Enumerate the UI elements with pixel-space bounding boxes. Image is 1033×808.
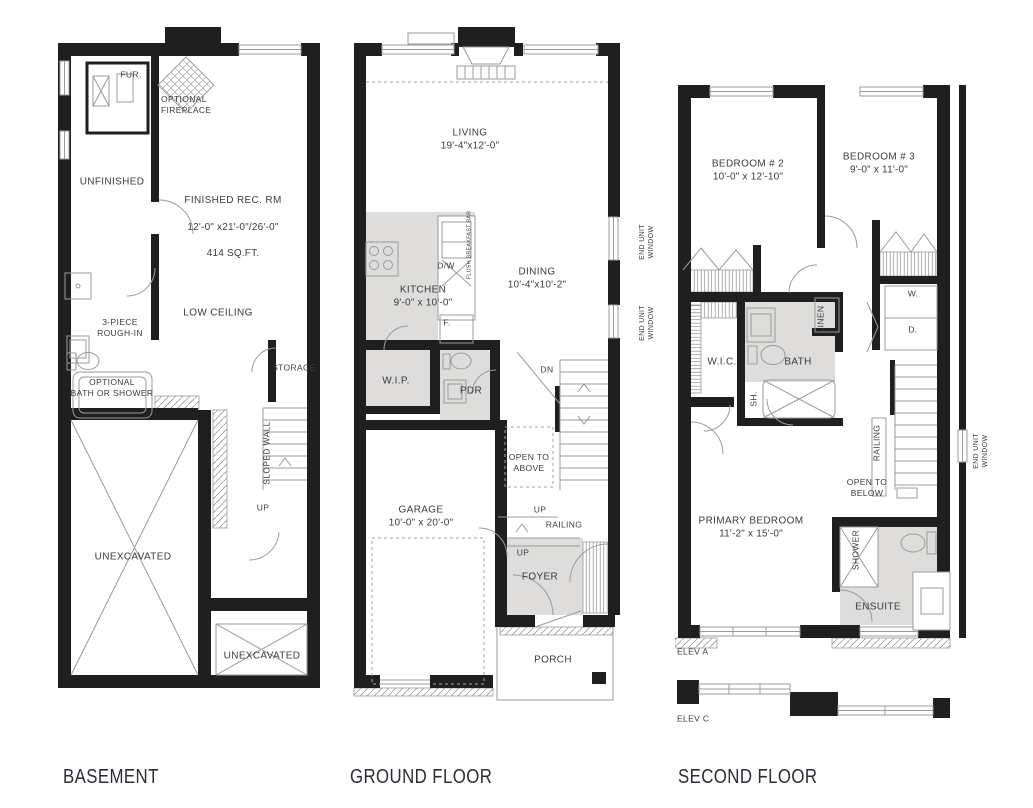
label-elev-a: ELEV A — [677, 646, 708, 657]
label-rough-in: 3-PIECE ROUGH-IN — [97, 317, 143, 339]
label-kitchen: KITCHEN9'-0" x 10'-0" — [394, 271, 453, 324]
label-up-stair: UP — [534, 504, 547, 515]
driveway-outline — [372, 538, 484, 684]
label-end-unit-window-upper: END UNIT WINDOW — [638, 224, 656, 260]
label-railing-ground: RAILING — [546, 519, 582, 530]
label-end-unit-window-second: END UNIT WINDOW — [972, 433, 990, 469]
label-bath: BATH — [784, 355, 811, 368]
label-bedroom3: BEDROOM # 39'-0" x 11'-0" — [843, 138, 915, 191]
ground-floor-title: GROUND FLOOR — [350, 766, 492, 789]
label-wip: W.I.P. — [382, 374, 409, 387]
label-porch: PORCH — [534, 653, 572, 666]
label-bedroom2: BEDROOM # 210'-0" x 12'-10" — [712, 145, 784, 198]
label-flush-breakfast-bar: FLUSH BREAKFAST BAR — [466, 211, 473, 280]
label-dining: DINING10'-4"x10'-2" — [508, 253, 567, 306]
label-garage: GARAGE10'-0" x 20'-0" — [389, 491, 454, 544]
label-fur: FUR. — [120, 69, 141, 80]
label-shower: SHOWER — [850, 530, 861, 570]
label-rec-room: FINISHED REC. RM 12'-0" x21'-0"/26'-0" 4… — [184, 181, 281, 273]
label-sh: SH. — [748, 391, 759, 406]
label-wic: W.I.C. — [707, 355, 736, 368]
label-pdr: PDR — [460, 384, 482, 397]
label-open-to-above: OPEN TO ABOVE — [509, 452, 549, 474]
label-low-ceiling: LOW CEILING — [183, 306, 252, 319]
label-unfinished: UNFINISHED — [80, 175, 145, 188]
label-optional-bath: OPTIONAL BATH OR SHOWER — [71, 377, 154, 399]
label-elev-c: ELEV C — [677, 713, 709, 724]
label-living: LIVING19'-4"x12'-0" — [441, 114, 500, 167]
label-unexcavated-main: UNEXCAVATED — [95, 550, 172, 563]
label-storage: STORAGE — [272, 362, 316, 373]
label-linen: LINEN — [815, 306, 826, 333]
label-dn: DN — [541, 364, 554, 375]
label-optional-fireplace: OPTIONAL FIREPLACE — [161, 94, 211, 116]
label-ensuite: ENSUITE — [855, 600, 901, 613]
label-washer: W. — [908, 288, 919, 299]
label-dryer: D. — [908, 324, 917, 335]
second-floor-title: SECOND FLOOR — [678, 766, 817, 789]
label-sloped-wall: SLOPED WALL — [261, 421, 272, 485]
basement-title: BASEMENT — [63, 766, 159, 789]
label-basement-up: UP — [257, 502, 270, 513]
label-primary-bedroom: PRIMARY BEDROOM11'-2" x 15'-0" — [699, 502, 804, 555]
label-dw: D/W — [437, 260, 455, 271]
floor-plan-sheet: FUR. OPTIONAL FIREPLACE UNFINISHED FINIS… — [0, 0, 1033, 808]
label-open-to-below: OPEN TO BELOW — [847, 477, 887, 499]
label-up-foyer: UP — [517, 547, 530, 558]
label-fridge: F. — [443, 317, 450, 328]
label-railing-second: RAILING — [871, 425, 882, 461]
label-foyer: FOYER — [522, 570, 558, 583]
label-unexcavated-small: UNEXCAVATED — [224, 649, 301, 662]
label-end-unit-window-lower: END UNIT WINDOW — [638, 305, 656, 341]
